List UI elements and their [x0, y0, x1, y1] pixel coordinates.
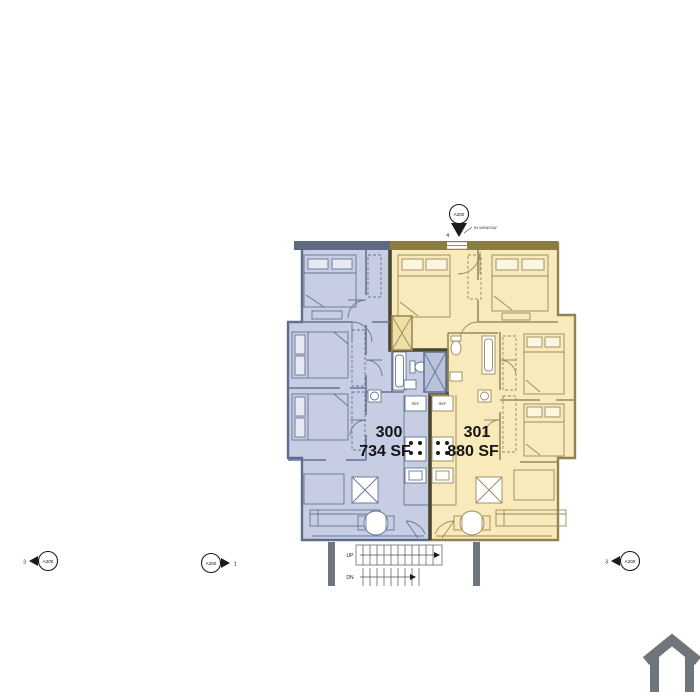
home-logo-icon	[646, 640, 698, 692]
x-table	[476, 477, 502, 503]
unit-300-area: 734 SF	[359, 443, 411, 460]
toilet-tank	[451, 336, 461, 341]
marker-top-pointer	[451, 223, 467, 237]
bathtub	[482, 336, 495, 374]
unit-301-area: 880 SF	[447, 443, 499, 460]
sink	[450, 372, 462, 381]
dn-arrowhead	[410, 574, 416, 580]
marker-right-number: 3	[605, 560, 608, 566]
marker-top-label: A200	[454, 212, 465, 217]
marker-center-label: A200	[206, 561, 217, 566]
up-arrowhead	[434, 552, 440, 558]
kitchen-sink	[432, 468, 453, 483]
sink	[404, 380, 416, 389]
top-wall-band	[294, 241, 558, 250]
marker-top-number: 4	[446, 233, 449, 239]
stair-post	[473, 542, 480, 586]
x-table	[352, 477, 378, 503]
marker-right-label: A200	[625, 559, 636, 564]
marker-top-note: IN WINDOW	[474, 225, 497, 230]
marker-left-pointer	[29, 556, 38, 566]
marker-center-number: 1	[234, 562, 237, 568]
fridge-label: REF	[412, 401, 421, 406]
marker-left-label: A200	[43, 559, 54, 564]
section-marker-right: A200 3	[605, 552, 639, 571]
floor-plan-drawing: REF 300 734 SF	[0, 0, 700, 700]
exterior-stairs: UP DN	[328, 542, 480, 586]
kitchen-sink	[405, 468, 426, 483]
washer-301	[478, 390, 491, 402]
marker-center-pointer	[221, 558, 230, 568]
fridge-label: REF	[439, 401, 448, 406]
section-marker-center: A200 1	[202, 554, 238, 573]
toilet	[451, 341, 461, 355]
marker-left-number: 3	[23, 560, 26, 566]
marker-right-pointer	[611, 556, 620, 566]
stairs-dn-label: DN	[346, 575, 354, 581]
section-marker-top: A200 4 IN WINDOW	[446, 205, 497, 240]
washer-300	[368, 390, 381, 402]
unit-301-number: 301	[464, 424, 491, 441]
unit-300-number: 300	[376, 424, 403, 441]
toilet-tank	[410, 361, 415, 373]
sheet: REF 300 734 SF	[0, 0, 700, 700]
section-marker-left: A200 3	[23, 552, 57, 571]
x-closet-301	[392, 316, 412, 350]
stair-post	[328, 542, 335, 586]
x-closet-300	[424, 352, 446, 392]
stairs-up-label: UP	[347, 553, 355, 559]
